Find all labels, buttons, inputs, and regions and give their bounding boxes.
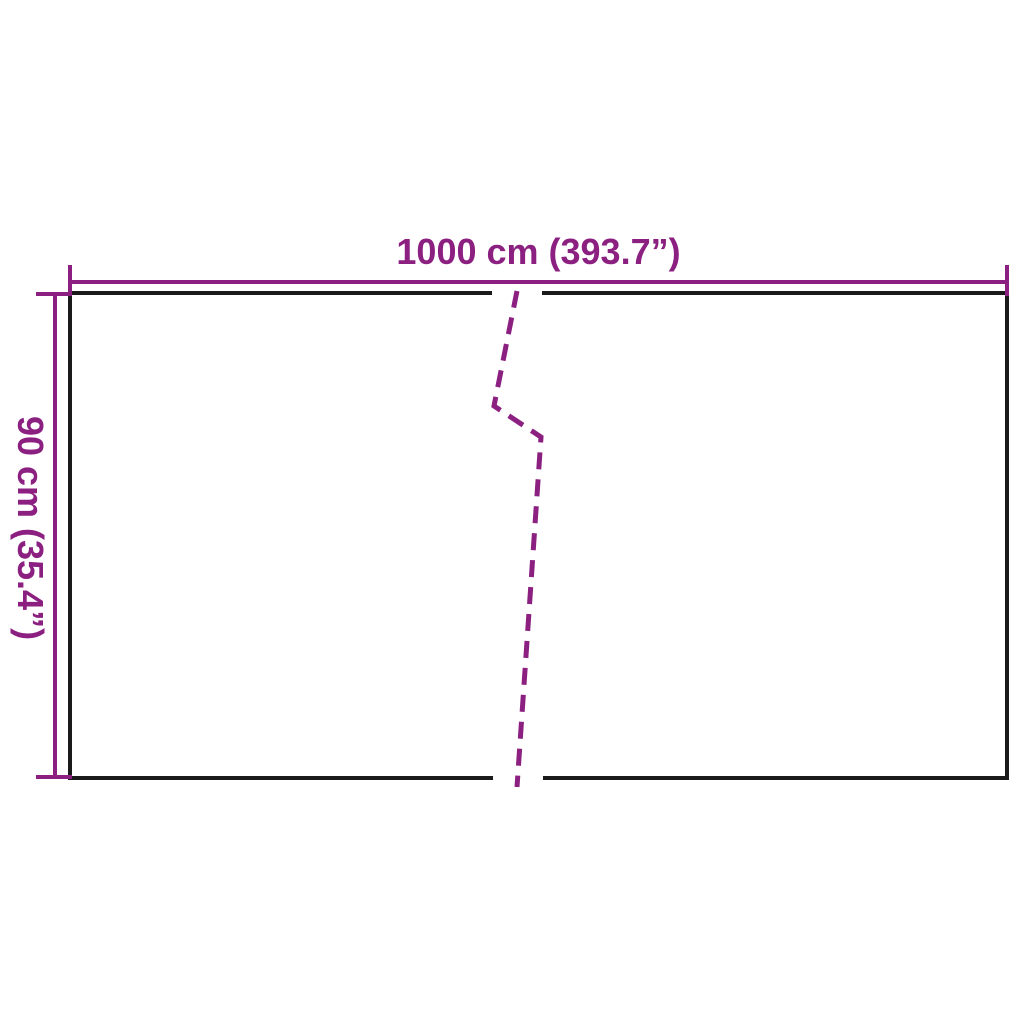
width-label: 1000 cm (393.7”) [70,231,1007,273]
height-label: 90 cm (35.4”) [9,416,51,640]
panel-outline-left [70,293,493,778]
product-dimension-diagram: 1000 cm (393.7”) 90 cm (35.4”) [0,0,1024,1024]
dimension-drawing [0,0,1024,1024]
break-line [494,291,541,787]
panel-outline-right [542,293,1007,778]
